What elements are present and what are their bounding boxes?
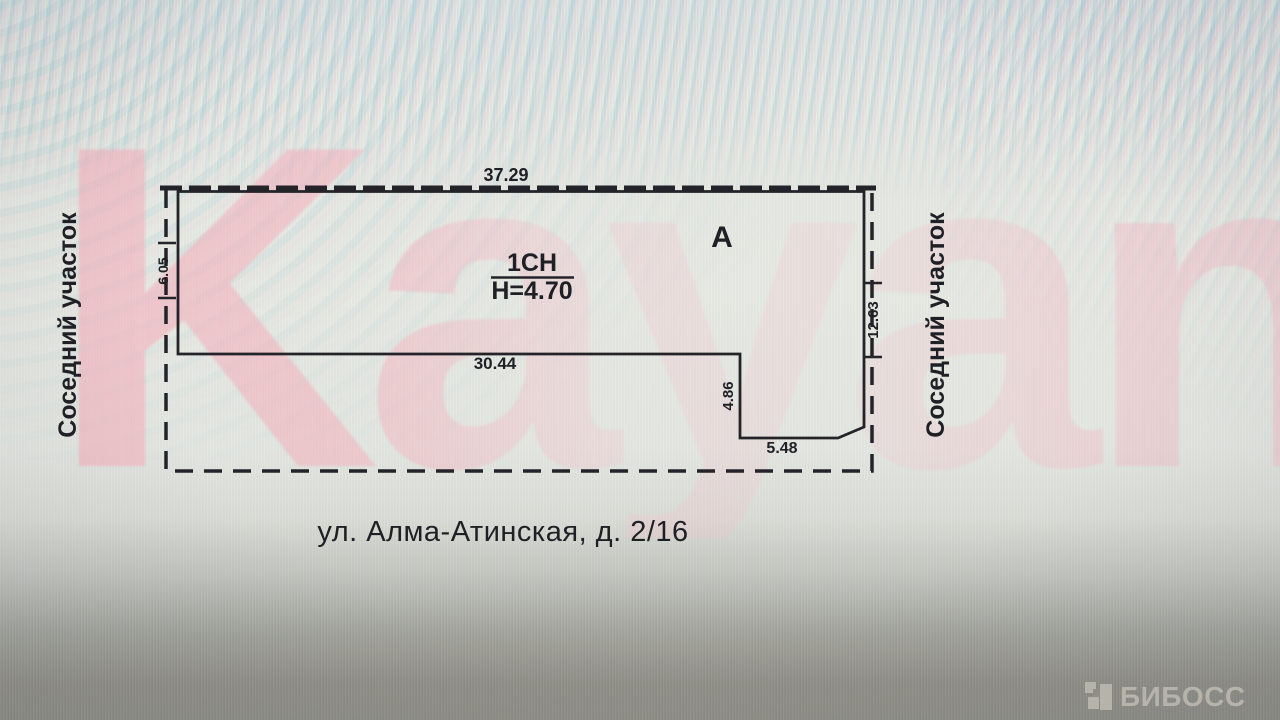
photo-vignette [0, 0, 1280, 720]
photographed-screen: Kayan 37.29 30.44 5.48 4.86 12.63 6.05 А… [0, 0, 1280, 720]
biboss-logo-text: БИБОСС [1120, 683, 1246, 711]
biboss-logo: БИБОСС [1084, 681, 1246, 712]
biboss-logo-icon [1084, 681, 1115, 712]
